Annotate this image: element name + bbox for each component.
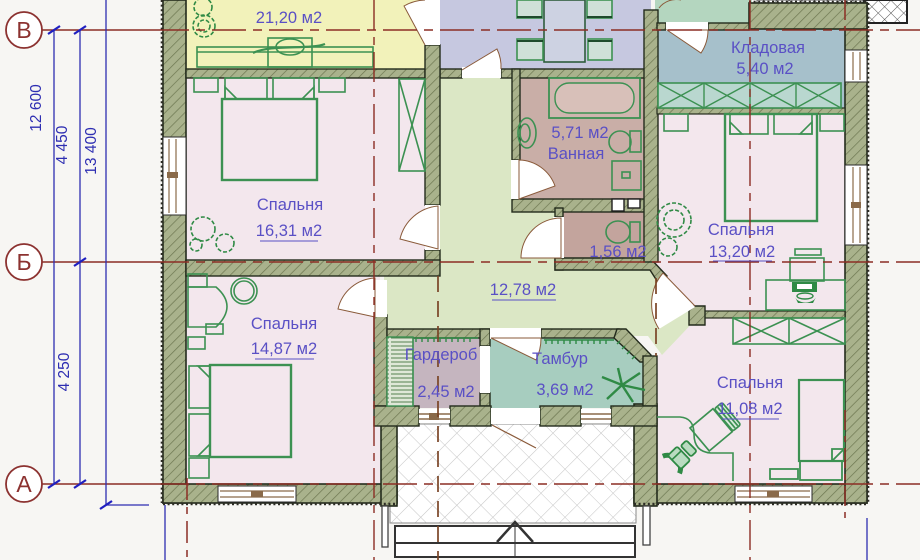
- svg-text:5,71 м2: 5,71 м2: [551, 124, 608, 142]
- svg-text:А: А: [16, 471, 32, 497]
- svg-text:Гардероб: Гардероб: [405, 346, 478, 364]
- svg-text:Тамбур: Тамбур: [532, 350, 588, 368]
- svg-text:Ванная: Ванная: [548, 145, 605, 163]
- svg-text:Спальня: Спальня: [257, 196, 323, 214]
- svg-text:5,40 м2: 5,40 м2: [736, 60, 793, 78]
- svg-text:3,69 м2: 3,69 м2: [536, 381, 593, 399]
- svg-text:Спальня: Спальня: [717, 374, 783, 392]
- svg-text:2,45 м2: 2,45 м2: [417, 383, 474, 401]
- svg-text:12 600: 12 600: [28, 84, 45, 132]
- svg-text:13 400: 13 400: [83, 127, 100, 175]
- svg-text:Кладовая: Кладовая: [731, 39, 805, 57]
- svg-text:В: В: [16, 17, 31, 43]
- svg-text:Спальня: Спальня: [251, 315, 317, 333]
- svg-text:4 450: 4 450: [54, 125, 71, 164]
- svg-text:14,87 м2: 14,87 м2: [251, 340, 317, 358]
- svg-text:12,78 м2: 12,78 м2: [490, 281, 556, 299]
- svg-text:Б: Б: [16, 249, 31, 275]
- svg-text:Спальня: Спальня: [708, 221, 774, 239]
- svg-text:21,20 м2: 21,20 м2: [256, 9, 322, 27]
- svg-text:16,31 м2: 16,31 м2: [256, 222, 322, 240]
- svg-text:13,20 м2: 13,20 м2: [709, 243, 775, 261]
- svg-text:1,56 м2: 1,56 м2: [589, 243, 646, 261]
- svg-text:11,08 м2: 11,08 м2: [717, 400, 782, 418]
- svg-text:4 250: 4 250: [56, 352, 73, 391]
